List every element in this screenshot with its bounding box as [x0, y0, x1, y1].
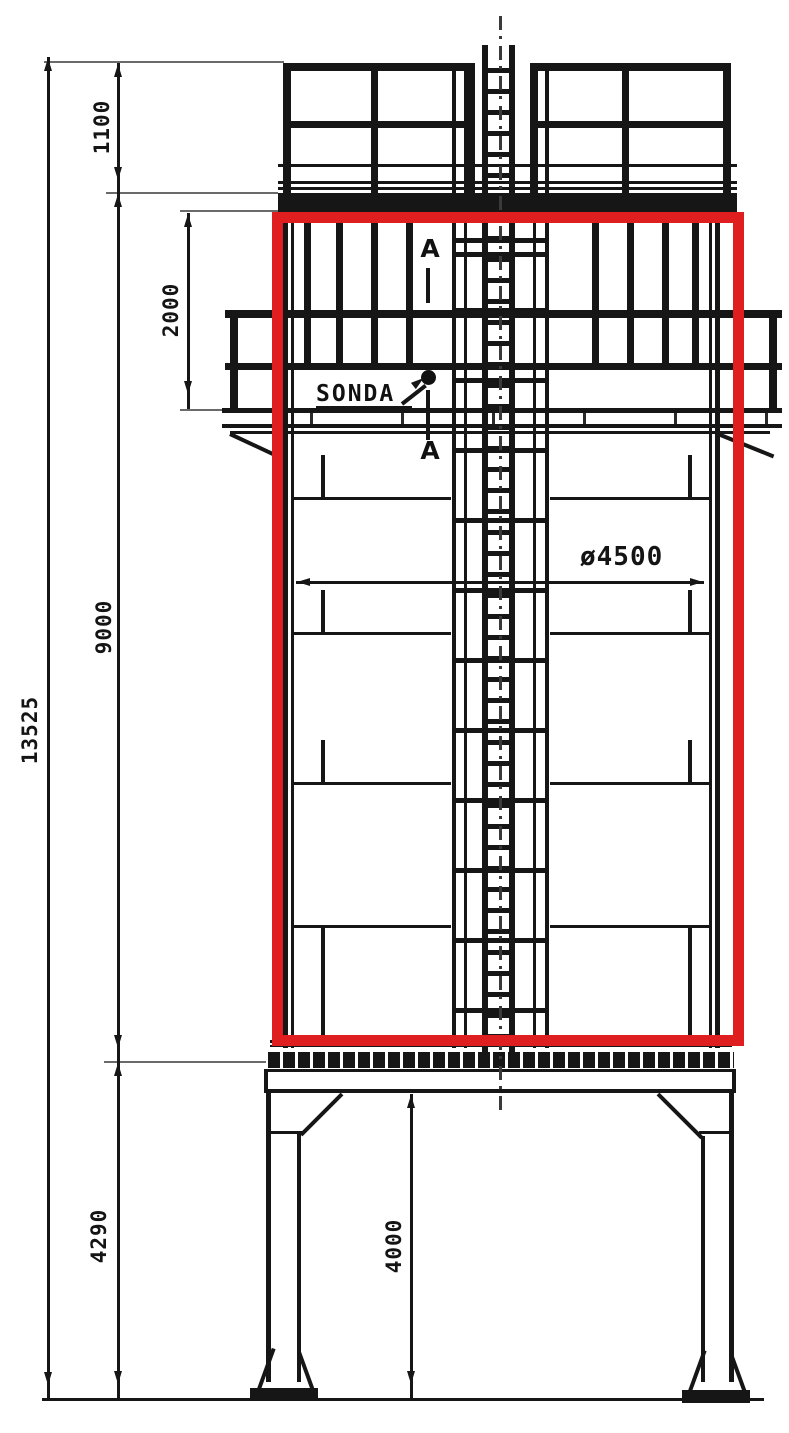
dim-label-railing-height: 1100	[89, 57, 115, 197]
dim-label-support-height: 4290	[86, 1166, 112, 1306]
structure-line	[701, 1136, 705, 1382]
probe-label: SONDA	[316, 381, 395, 407]
structure-line	[42, 1398, 764, 1401]
extension-line	[180, 210, 278, 212]
structure-line	[283, 63, 475, 71]
leg-haunch	[300, 1093, 344, 1137]
dimension-arrowhead	[44, 1372, 52, 1385]
dimension-line	[187, 213, 190, 409]
structure-line	[682, 1390, 750, 1403]
highlight-rectangle	[272, 212, 744, 1046]
dimension-arrowhead	[114, 1371, 122, 1384]
dimension-arrowhead	[44, 58, 52, 71]
leg-haunch	[657, 1093, 704, 1140]
platform-bracket	[229, 432, 274, 456]
dimension-arrowhead	[114, 64, 122, 77]
structure-line	[230, 318, 238, 410]
dim-label-shell-height: 9000	[91, 557, 117, 697]
extension-line	[104, 1061, 266, 1063]
dimension-line	[47, 57, 50, 1400]
structure-line	[723, 63, 731, 197]
section-marker-a-bottom: A	[417, 436, 443, 465]
structure-line	[729, 1092, 734, 1382]
dimension-arrowhead	[114, 1035, 122, 1048]
extension-line	[106, 192, 278, 194]
dim-label-ground-clearance: 4000	[381, 1176, 407, 1316]
dimension-arrowhead	[407, 1095, 415, 1108]
dimension-arrowhead	[407, 1371, 415, 1384]
structure-line	[371, 63, 378, 197]
dimension-line	[117, 63, 120, 1400]
structure-line	[530, 63, 731, 71]
dimension-arrowhead	[184, 214, 192, 227]
dim-label-overall-height: 13525	[17, 660, 43, 800]
structure-line	[283, 121, 475, 128]
dimension-arrowhead	[114, 1063, 122, 1076]
structure-line	[732, 1069, 736, 1093]
dimension-arrowhead	[114, 167, 122, 180]
dimension-arrowhead	[114, 194, 122, 207]
structure-line	[530, 121, 731, 128]
structure-line	[264, 1069, 268, 1093]
extension-line	[44, 61, 284, 63]
structure-line	[266, 1092, 271, 1382]
dimension-arrowhead	[184, 381, 192, 394]
structure-line	[467, 63, 475, 197]
dimension-line	[410, 1094, 413, 1400]
section-marker-a-top: A	[417, 234, 443, 263]
structure-line	[622, 63, 629, 197]
drawing-sheet: A A SONDA 13525 9000 1100 2000 4290 4000…	[0, 0, 789, 1433]
structure-line	[297, 1133, 301, 1382]
structure-line	[283, 63, 291, 197]
structure-line	[769, 318, 777, 410]
dim-label-upper-section: 2000	[158, 240, 184, 380]
